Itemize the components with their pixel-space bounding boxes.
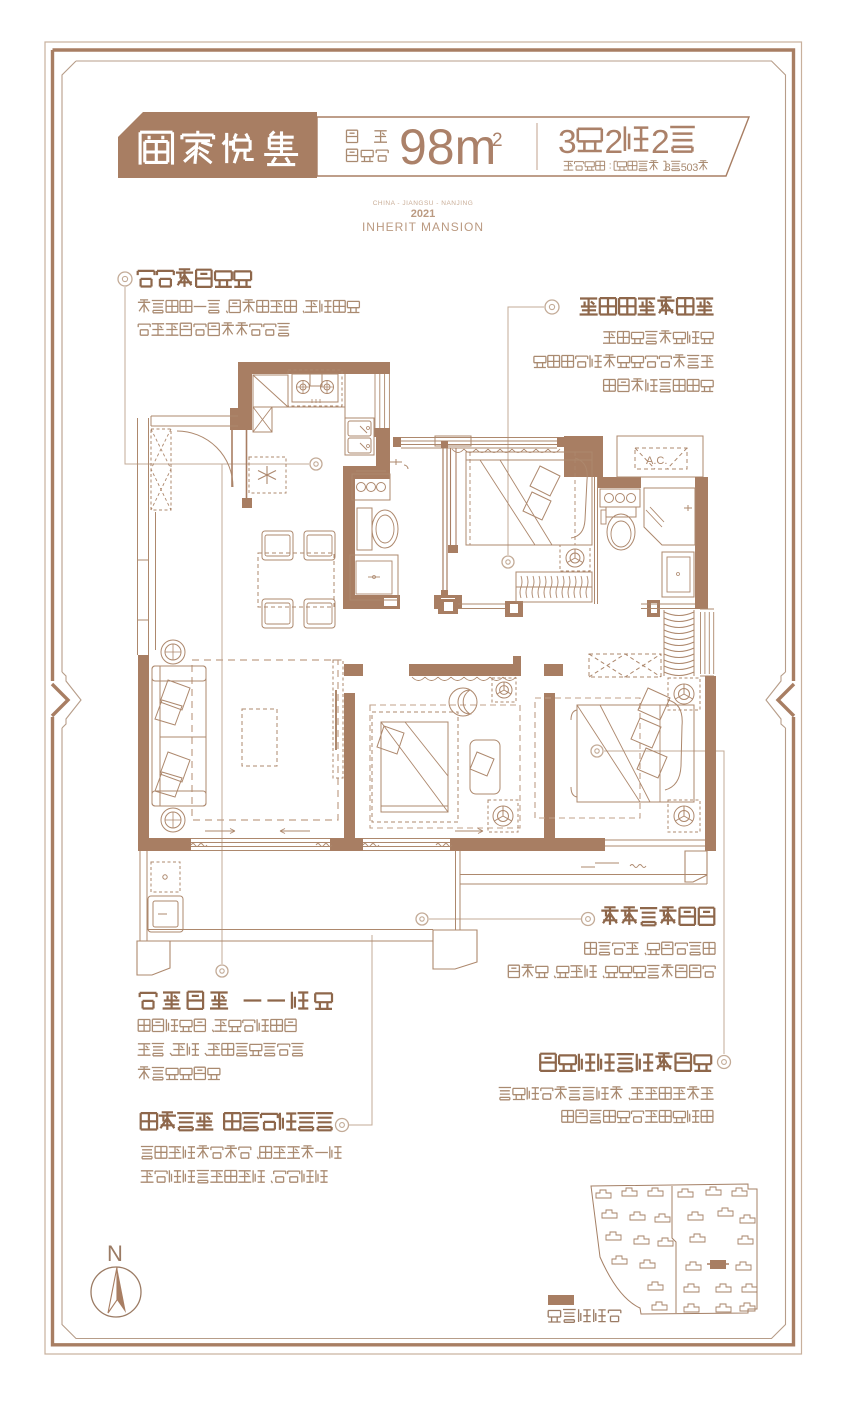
svg-text:3: 3 bbox=[692, 162, 698, 174]
svg-text:INHERIT MANSION: INHERIT MANSION bbox=[362, 220, 484, 234]
svg-text:2021: 2021 bbox=[411, 208, 435, 220]
svg-text:2: 2 bbox=[651, 124, 670, 161]
svg-text:98m: 98m bbox=[399, 119, 496, 175]
svg-text:8: 8 bbox=[665, 162, 671, 174]
svg-text:CHINA - JIANGSU - NANJING: CHINA - JIANGSU - NANJING bbox=[373, 200, 474, 207]
svg-text:N: N bbox=[107, 1241, 123, 1266]
svg-text:3: 3 bbox=[558, 124, 577, 161]
svg-text:2: 2 bbox=[492, 130, 503, 151]
svg-text:2: 2 bbox=[605, 124, 624, 161]
svg-text:A.C.: A.C. bbox=[646, 455, 667, 467]
